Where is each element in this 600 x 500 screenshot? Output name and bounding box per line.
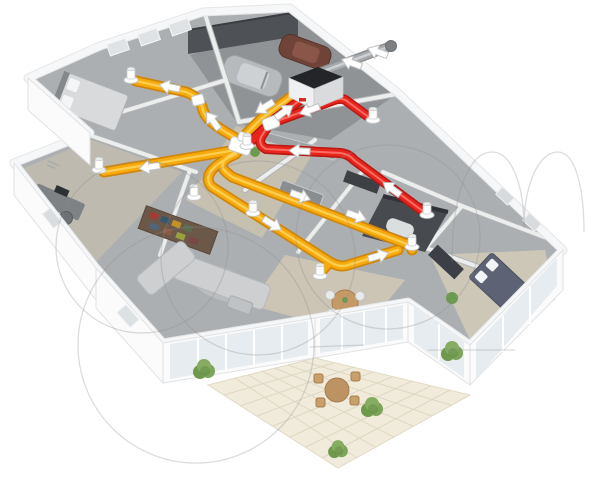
unit-label: [299, 98, 306, 102]
scene-canvas: [0, 0, 600, 500]
ventilation-cutaway-illustration: [0, 0, 600, 500]
